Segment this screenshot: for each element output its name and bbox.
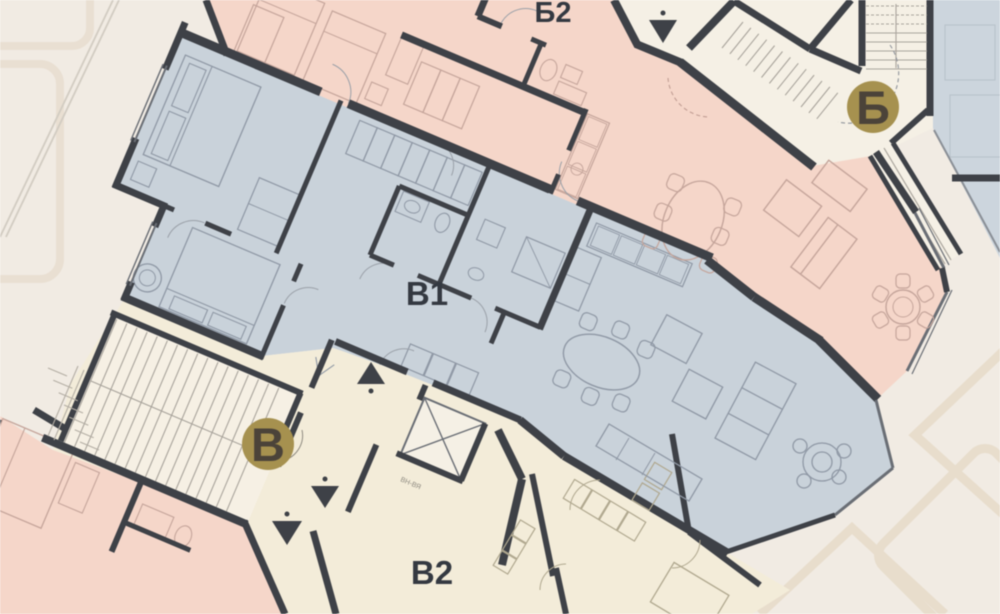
svg-text:Б: Б [856, 81, 890, 134]
svg-text:В: В [251, 418, 285, 471]
svg-text:В2: В2 [411, 554, 453, 591]
svg-text:В1: В1 [406, 275, 448, 312]
svg-text:Б2: Б2 [535, 0, 572, 29]
